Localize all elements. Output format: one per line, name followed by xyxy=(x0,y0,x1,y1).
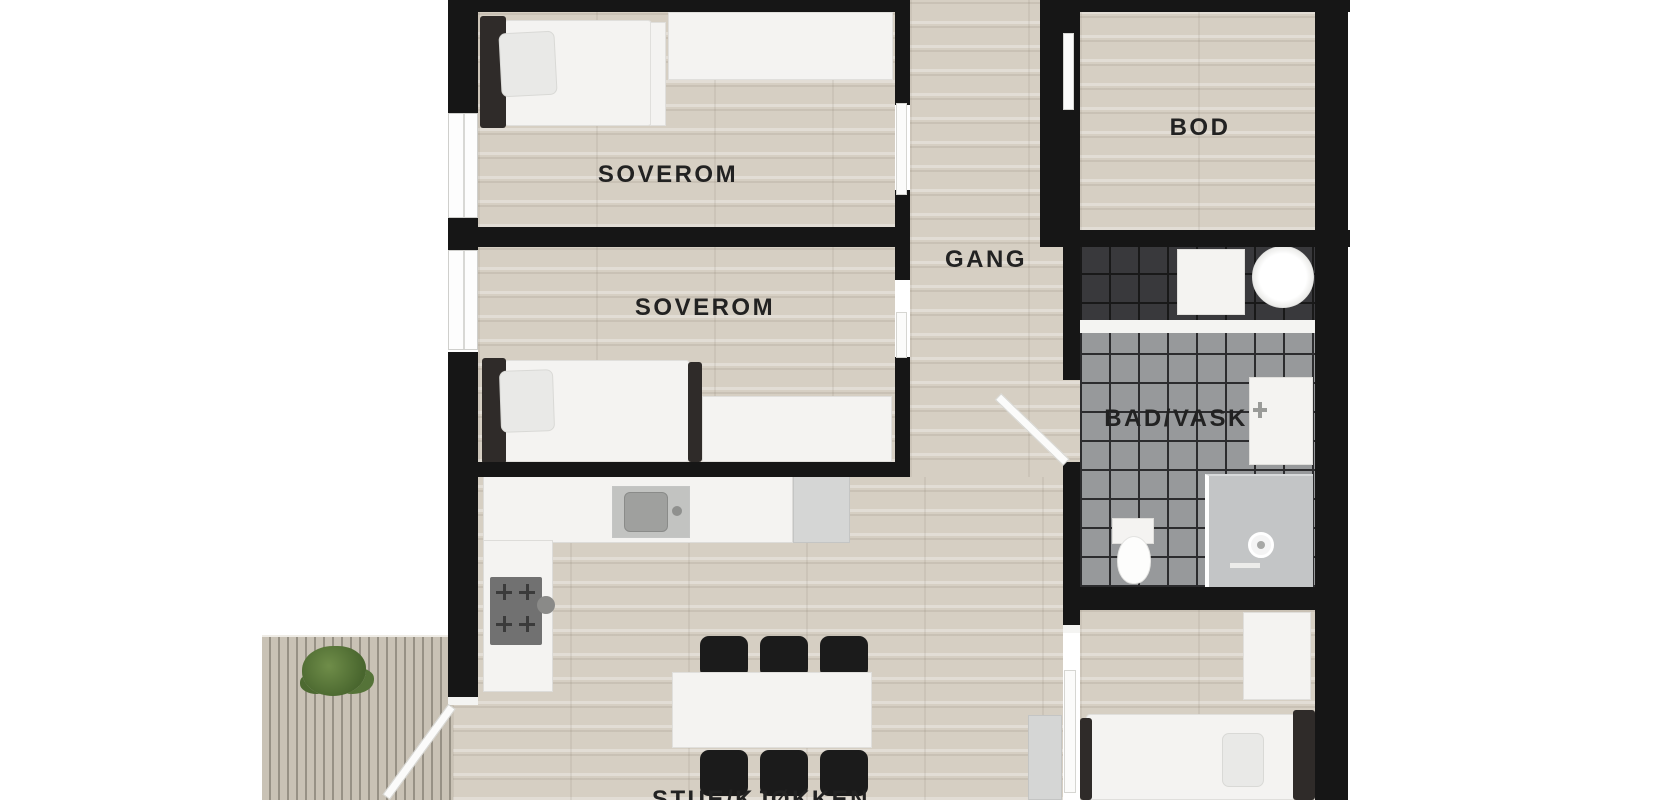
wall-west-c xyxy=(448,352,478,700)
door-bedroom2 xyxy=(896,312,907,358)
wall-cap xyxy=(1063,625,1080,633)
wall-east xyxy=(1315,0,1348,800)
wall-cap xyxy=(448,697,478,705)
room-label-hallway: GANG xyxy=(945,248,1027,272)
door-storage xyxy=(1063,33,1074,110)
toilet-bowl xyxy=(1117,536,1151,584)
wall-bath-south xyxy=(1063,587,1315,610)
wall-west-a xyxy=(448,0,478,115)
stove-pan xyxy=(537,596,555,614)
shower-head-center xyxy=(1257,541,1265,549)
bed3-footboard xyxy=(1080,718,1092,800)
stove-burner xyxy=(519,584,535,600)
wall-hall-west-b xyxy=(895,190,910,280)
bedroom3-cabinet xyxy=(1243,612,1311,700)
bed1-pillow xyxy=(498,31,557,98)
room-label-living-kitchen: STUE/KJØKKEN xyxy=(652,788,870,800)
wall-bedroom-divider xyxy=(448,227,895,247)
wall-storage-bath xyxy=(1040,230,1350,247)
bathroom-cabinet xyxy=(1177,249,1245,315)
bathroom-vanity xyxy=(1249,377,1313,465)
room-label-bedroom2: SOVEROM xyxy=(635,296,775,320)
bed3-pillow xyxy=(1222,733,1264,787)
floor-plan: SOVEROM SOVEROM GANG BOD BAD/VASK STUE/K… xyxy=(0,0,1670,800)
sideboard xyxy=(1028,715,1062,800)
wall-top-right xyxy=(1040,0,1350,12)
bed2-pillow xyxy=(499,369,555,433)
window xyxy=(448,113,478,218)
room-label-bathroom: BAD/VASK xyxy=(1104,407,1248,431)
wall-top-left xyxy=(448,0,910,12)
bedroom2-bench xyxy=(702,396,892,462)
shower xyxy=(1205,474,1313,587)
bed3-mattress xyxy=(1086,714,1296,800)
stove-burner xyxy=(496,584,512,600)
kitchen-fridge xyxy=(793,475,850,543)
room-label-storage: BOD xyxy=(1170,116,1231,140)
vanity-faucet xyxy=(1258,402,1262,418)
wall-storage-west xyxy=(1040,0,1080,230)
room-label-bedroom1: SOVEROM xyxy=(598,163,738,187)
door-bedroom1 xyxy=(896,103,907,195)
kitchen-faucet xyxy=(672,506,682,516)
wall-bath-west-a xyxy=(1063,247,1080,380)
wall-bedroom2-kitchen xyxy=(448,462,910,477)
bedroom1-wardrobe xyxy=(668,12,893,80)
wall-hall-west-c xyxy=(895,357,910,477)
wall-hall-west-a xyxy=(895,0,910,105)
bathroom-counter-edge xyxy=(1080,320,1315,333)
stove-burner xyxy=(519,616,535,632)
shower-valve xyxy=(1230,563,1260,568)
window xyxy=(448,250,478,350)
kitchen-sink-basin xyxy=(624,492,668,532)
bed1-foot-blanket xyxy=(650,22,666,126)
bed3-headboard xyxy=(1293,710,1315,800)
washing-machine xyxy=(1252,246,1314,308)
bed2-footboard xyxy=(688,362,702,462)
stove-burner xyxy=(496,616,512,632)
dining-table xyxy=(672,672,872,748)
door-bedroom3 xyxy=(1064,670,1076,793)
